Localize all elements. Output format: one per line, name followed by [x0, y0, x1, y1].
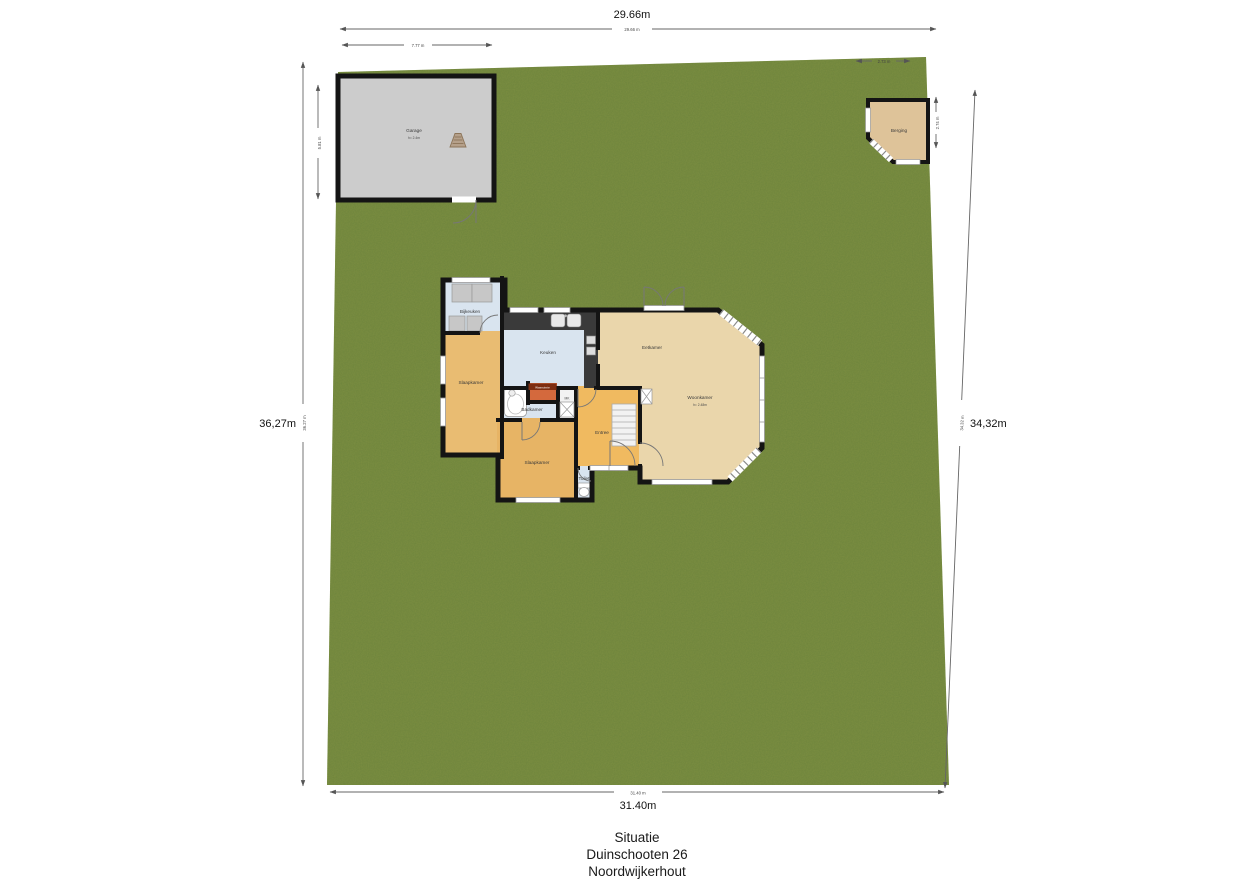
shed-label: Berging	[891, 128, 908, 133]
label-eetkamer: Eetkamer	[642, 345, 662, 350]
dim-shed-height: 2.74 m	[935, 116, 940, 129]
bathroom-fixtures	[505, 388, 527, 417]
dim-garage-height: 5.81 m	[317, 136, 322, 149]
dim-right: 34,32m	[970, 418, 1007, 430]
dim-garage-width: 7.77 m	[412, 43, 425, 48]
garage-label: Garage	[406, 128, 422, 133]
garage-sublabel: h= 2.4m	[408, 136, 420, 140]
label-woonkamer: Woonkamer	[687, 395, 713, 400]
dim-top-small: 29.66 m	[624, 27, 640, 32]
dim-shed-width: 2.73 m	[878, 59, 891, 64]
label-meterkast: MK	[565, 397, 571, 401]
toilet-fixture	[578, 483, 590, 497]
dim-right-small: 34.32 m	[959, 415, 965, 431]
dim-left: 36,27m	[259, 418, 296, 430]
dim-top: 29.66m	[614, 9, 651, 21]
dim-left-small: 36.27 m	[302, 415, 307, 431]
utility-closet-label: Wasruimte	[535, 385, 550, 389]
meterkast-door	[560, 402, 574, 417]
label-slaapkamer-bottom: Slaapkamer	[524, 460, 549, 465]
staircase	[612, 404, 636, 446]
title-city: Noordwijkerhout	[588, 864, 686, 879]
site-plan-page: 29.66m 29.66 m 7.77 m 5.81 m 2.73 m 2.74…	[0, 0, 1258, 890]
label-toilet: Toilet	[579, 476, 591, 481]
dim-bottom: 31.40m	[620, 800, 657, 812]
title-situatie: Situatie	[614, 830, 659, 845]
utility-closet: Wasruimte	[529, 384, 557, 391]
label-bijkeuken: Bijkeuken	[460, 309, 481, 314]
title-block: Situatie Duinschooten 26 Noordwijkerhout	[586, 830, 687, 879]
label-badkamer: Badkamer	[521, 407, 543, 412]
site-plan-drawing: 29.66m 29.66 m 7.77 m 5.81 m 2.73 m 2.74…	[0, 0, 1258, 890]
label-slaapkamer-left: Slaapkamer	[458, 380, 483, 385]
closet-panel	[641, 389, 652, 404]
label-woonkamer-sub: h= 2.48m	[693, 403, 707, 407]
dim-bottom-small: 31.40 m	[630, 790, 646, 795]
label-entree: Entree	[595, 430, 609, 435]
garage-building: Garage h= 2.4m	[338, 76, 494, 223]
title-address: Duinschooten 26	[586, 847, 687, 862]
label-keuken: Keuken	[540, 350, 556, 355]
